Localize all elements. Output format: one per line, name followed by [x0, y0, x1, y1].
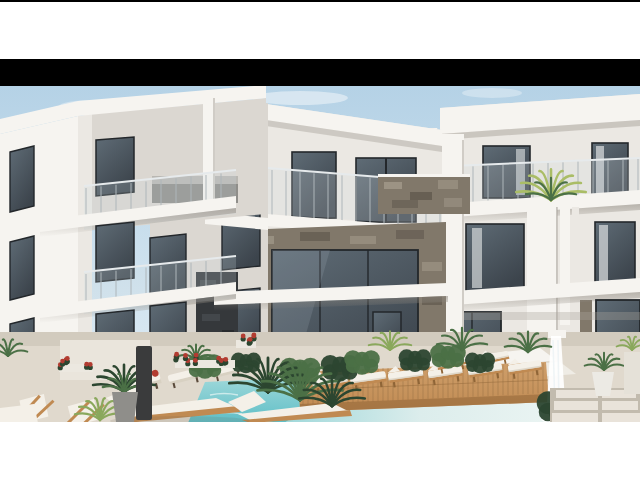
- red-flower: [65, 356, 70, 361]
- bush-tuft: [415, 349, 431, 365]
- bush-tuft: [480, 353, 495, 368]
- stone-texture: [350, 236, 376, 244]
- cloud: [462, 88, 522, 98]
- stone-texture: [410, 192, 432, 200]
- fin: [470, 125, 480, 129]
- stone-texture: [202, 314, 220, 321]
- window: [10, 236, 34, 300]
- red-flower: [183, 353, 188, 358]
- stone-texture: [422, 262, 442, 271]
- pilaster-edge: [462, 140, 464, 332]
- stone-texture: [438, 180, 458, 189]
- paver: [554, 401, 598, 410]
- stone-texture: [392, 200, 418, 208]
- stone-balcony-parapet: [378, 174, 470, 214]
- stone-texture: [300, 232, 330, 241]
- stone-texture: [444, 198, 462, 207]
- red-flower: [193, 358, 198, 363]
- screenshot-stage: [0, 0, 640, 480]
- red-flower: [219, 358, 224, 363]
- red-flower: [241, 334, 246, 339]
- window: [10, 146, 34, 212]
- soffit-shadow: [443, 312, 640, 320]
- white-pier: [527, 205, 557, 345]
- paver: [602, 401, 638, 410]
- red-flower: [60, 359, 65, 364]
- bush-tuft: [362, 350, 379, 367]
- planter-box: [624, 352, 640, 394]
- stone-cap: [378, 174, 470, 177]
- red-flower: [84, 362, 89, 367]
- gray-planter-pot: [112, 392, 138, 422]
- curtain: [599, 225, 608, 285]
- photo-scene: [0, 85, 640, 431]
- cloud: [252, 91, 348, 105]
- architectural-render-image: [0, 0, 640, 480]
- letterbox-bar: [0, 59, 640, 86]
- paver: [552, 413, 598, 422]
- paver: [556, 390, 598, 398]
- paver: [602, 413, 640, 422]
- pilaster: [560, 207, 570, 325]
- fin: [456, 126, 466, 130]
- red-flower: [194, 353, 199, 358]
- pilaster: [572, 207, 579, 325]
- stone-texture: [384, 182, 402, 189]
- top-rule: [0, 0, 640, 2]
- dark-bollard-pillar: [136, 346, 152, 420]
- red-flower: [174, 352, 179, 357]
- red-flower: [251, 334, 256, 339]
- red-flower: [248, 337, 253, 342]
- stone-texture: [396, 230, 424, 239]
- fin: [441, 127, 451, 131]
- red-flower: [223, 357, 228, 362]
- curtain: [472, 228, 482, 288]
